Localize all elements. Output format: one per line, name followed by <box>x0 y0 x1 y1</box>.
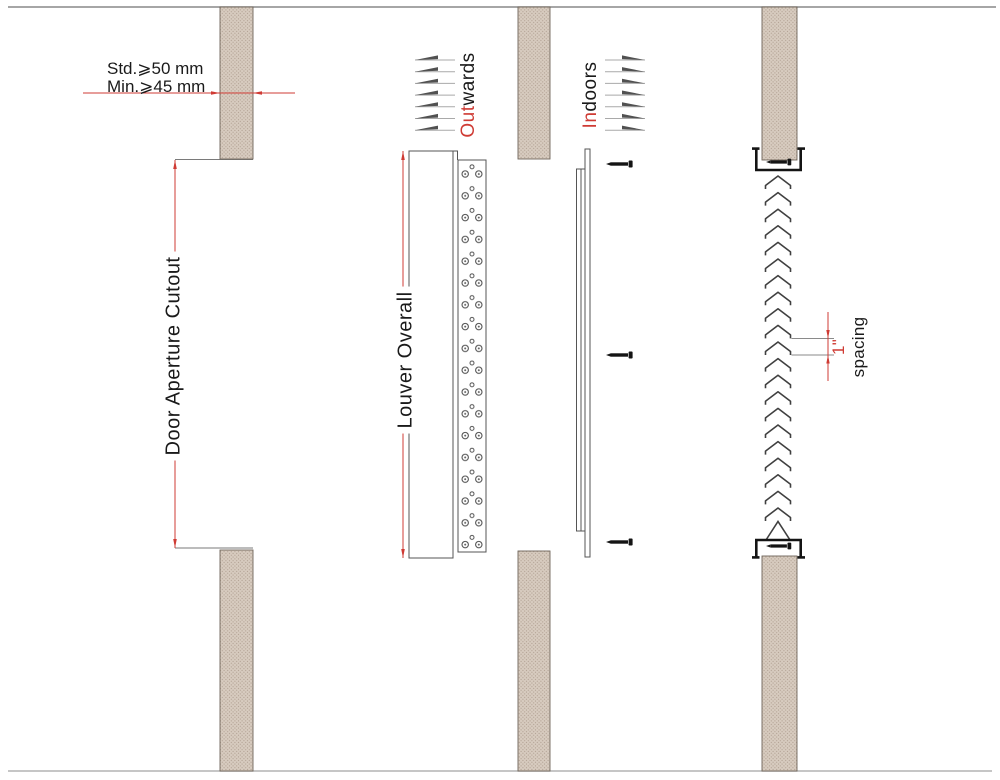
door-thickness-std-label: Std.⩾50 mm <box>107 60 205 78</box>
door-panel-bottom-middle <box>518 551 550 771</box>
view-indoors-plate <box>577 55 646 557</box>
louver-overall-label: Louver Overall <box>395 286 418 433</box>
inner-frame-flange <box>577 169 582 531</box>
door-panel-top-middle <box>518 7 550 159</box>
bottom-closed-blade <box>766 522 790 541</box>
page-border-lines <box>8 7 996 771</box>
outwards-label-highlight: Out <box>458 106 479 138</box>
airflow-outwards-arrows <box>415 55 455 130</box>
door-panel-top-left <box>220 7 253 159</box>
indoors-label-rest: doors <box>580 62 601 112</box>
door-panel-bottom-right <box>762 556 797 771</box>
view-assembled-section <box>752 7 834 771</box>
blade-spacing-label: 1" spacing <box>829 317 869 378</box>
bottom-retainer-bracket <box>752 540 805 557</box>
view-door-aperture <box>83 7 295 771</box>
dimension-blade-spacing <box>792 312 835 381</box>
louver-perforated-strip <box>458 160 486 552</box>
door-panel-bottom-left <box>220 550 253 771</box>
retainer-screw-bottom <box>766 543 791 550</box>
technical-drawing <box>0 0 1000 780</box>
blade-spacing-word: spacing <box>849 317 869 378</box>
indoors-label-highlight: In <box>580 112 601 129</box>
door-thickness-note: Std.⩾50 mm Min.⩾45 mm <box>107 60 205 96</box>
blade-spacing-value: 1" <box>829 317 849 378</box>
door-panel-top-right <box>762 7 797 160</box>
fixing-screws <box>606 161 633 546</box>
outwards-label-rest: wards <box>458 52 479 105</box>
door-aperture-cutout-label: Door Aperture Cutout <box>163 252 186 461</box>
indoors-label: Indoors <box>580 62 602 129</box>
drawing-canvas: Std.⩾50 mm Min.⩾45 mm Door Aperture Cuto… <box>0 0 1000 780</box>
door-thickness-min-label: Min.⩾45 mm <box>107 78 205 96</box>
inner-frame-plate <box>585 149 590 557</box>
outwards-label: Outwards <box>458 52 480 137</box>
airflow-indoors-arrows <box>605 55 645 130</box>
chevron-louver-blades <box>766 176 791 540</box>
